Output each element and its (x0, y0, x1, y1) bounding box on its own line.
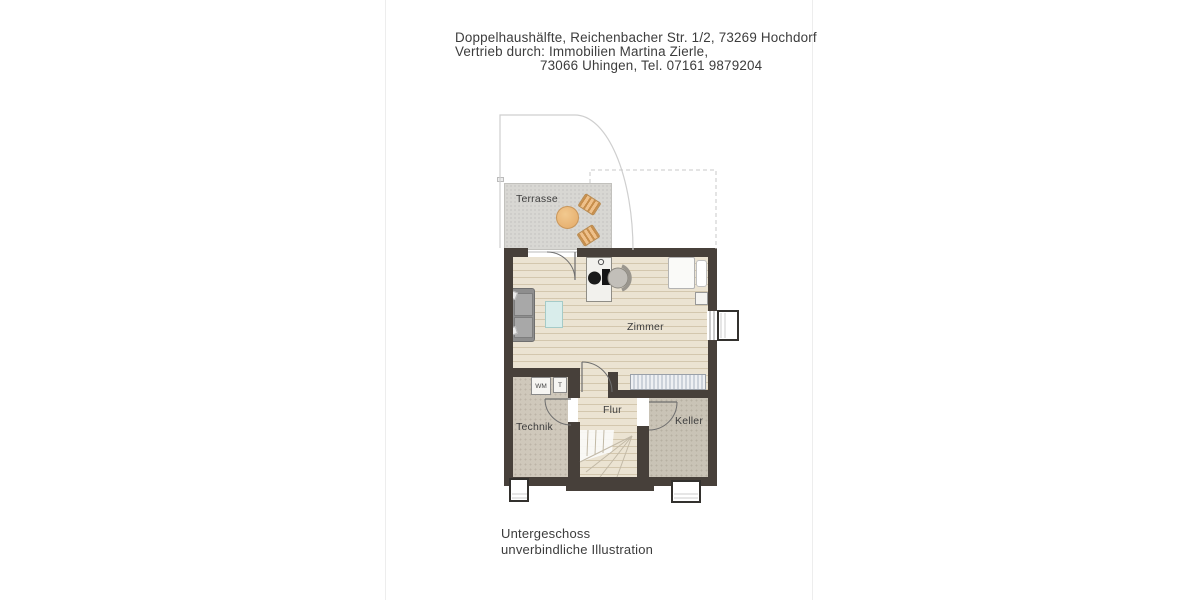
plan-caption: Untergeschoss unverbindliche Illustratio… (501, 526, 653, 558)
caption-line-2: unverbindliche Illustration (501, 542, 653, 558)
wardrobe (630, 374, 706, 390)
wall-left (504, 248, 513, 486)
caption-line-1: Untergeschoss (501, 526, 653, 542)
sofa-cushion-top (514, 293, 533, 316)
lightwell-bottom-left (509, 478, 529, 502)
wall-technik-stairs-lower (568, 422, 580, 486)
room-label-technik: Technik (516, 421, 553, 433)
window-right (707, 311, 717, 340)
washing-machine-label: WM (535, 383, 547, 390)
desk (586, 257, 612, 302)
terrace-corner-post (497, 177, 504, 182)
floorplan-page: Doppelhaushälfte, Reichenbacher Str. 1/2… (0, 0, 1200, 600)
wall-top-right (577, 248, 717, 257)
washing-machine: WM (531, 377, 551, 395)
room-label-terrasse: Terrasse (516, 193, 558, 205)
wall-technik-flur-upper (568, 368, 580, 398)
room-label-flur: Flur (603, 404, 622, 416)
wall-zimmer-technik (504, 368, 578, 377)
nightstand (695, 292, 708, 305)
wall-zimmer-keller (608, 390, 717, 398)
bed-pillow (696, 260, 707, 287)
terrace-table (556, 206, 579, 229)
dryer-label: T (558, 382, 562, 389)
room-label-keller: Keller (675, 415, 703, 427)
room-label-zimmer: Zimmer (627, 321, 664, 333)
dryer: T (553, 377, 567, 393)
keller-floor (649, 398, 708, 477)
coffee-table (545, 301, 563, 328)
wall-right (708, 248, 717, 486)
floor-plan: WM T (0, 0, 1200, 600)
wall-flur-keller (637, 426, 649, 486)
lightwell-bottom-right (671, 480, 701, 503)
sofa-cushion-bottom (514, 317, 533, 338)
lightwell-right (717, 310, 739, 341)
bed-duvet (668, 257, 695, 289)
